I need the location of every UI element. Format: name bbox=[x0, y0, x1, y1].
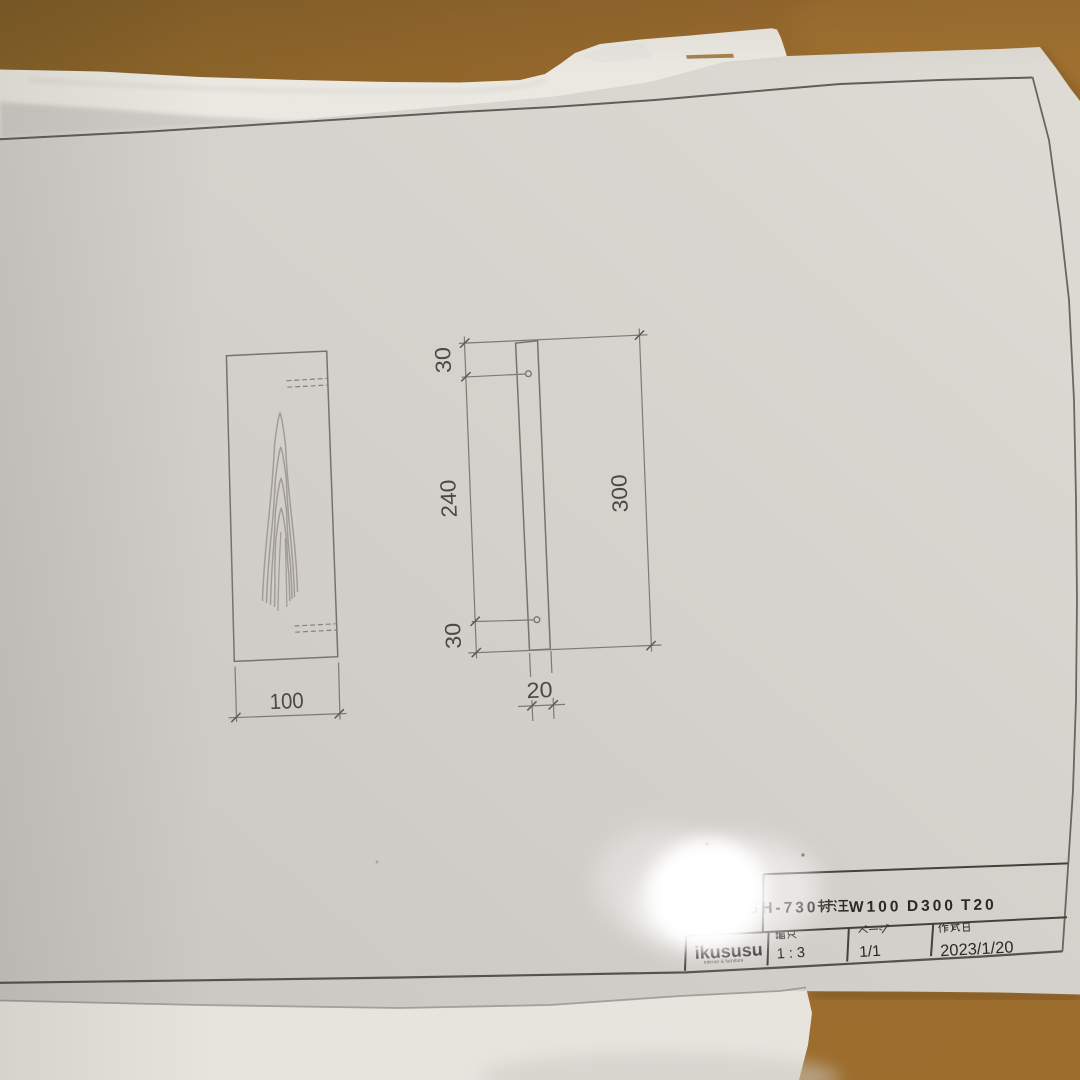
svg-text:D300: D300 bbox=[907, 897, 956, 915]
svg-text:1 : 3: 1 : 3 bbox=[776, 945, 805, 963]
svg-text:1/1: 1/1 bbox=[859, 943, 881, 961]
svg-text:30: 30 bbox=[430, 347, 456, 374]
svg-text:T20: T20 bbox=[961, 897, 997, 914]
svg-text:W100: W100 bbox=[849, 898, 902, 916]
svg-text:30: 30 bbox=[440, 622, 466, 649]
svg-text:300: 300 bbox=[606, 474, 633, 513]
svg-text:20: 20 bbox=[526, 677, 553, 703]
svg-text:100: 100 bbox=[269, 688, 304, 714]
svg-text:240: 240 bbox=[435, 479, 462, 518]
